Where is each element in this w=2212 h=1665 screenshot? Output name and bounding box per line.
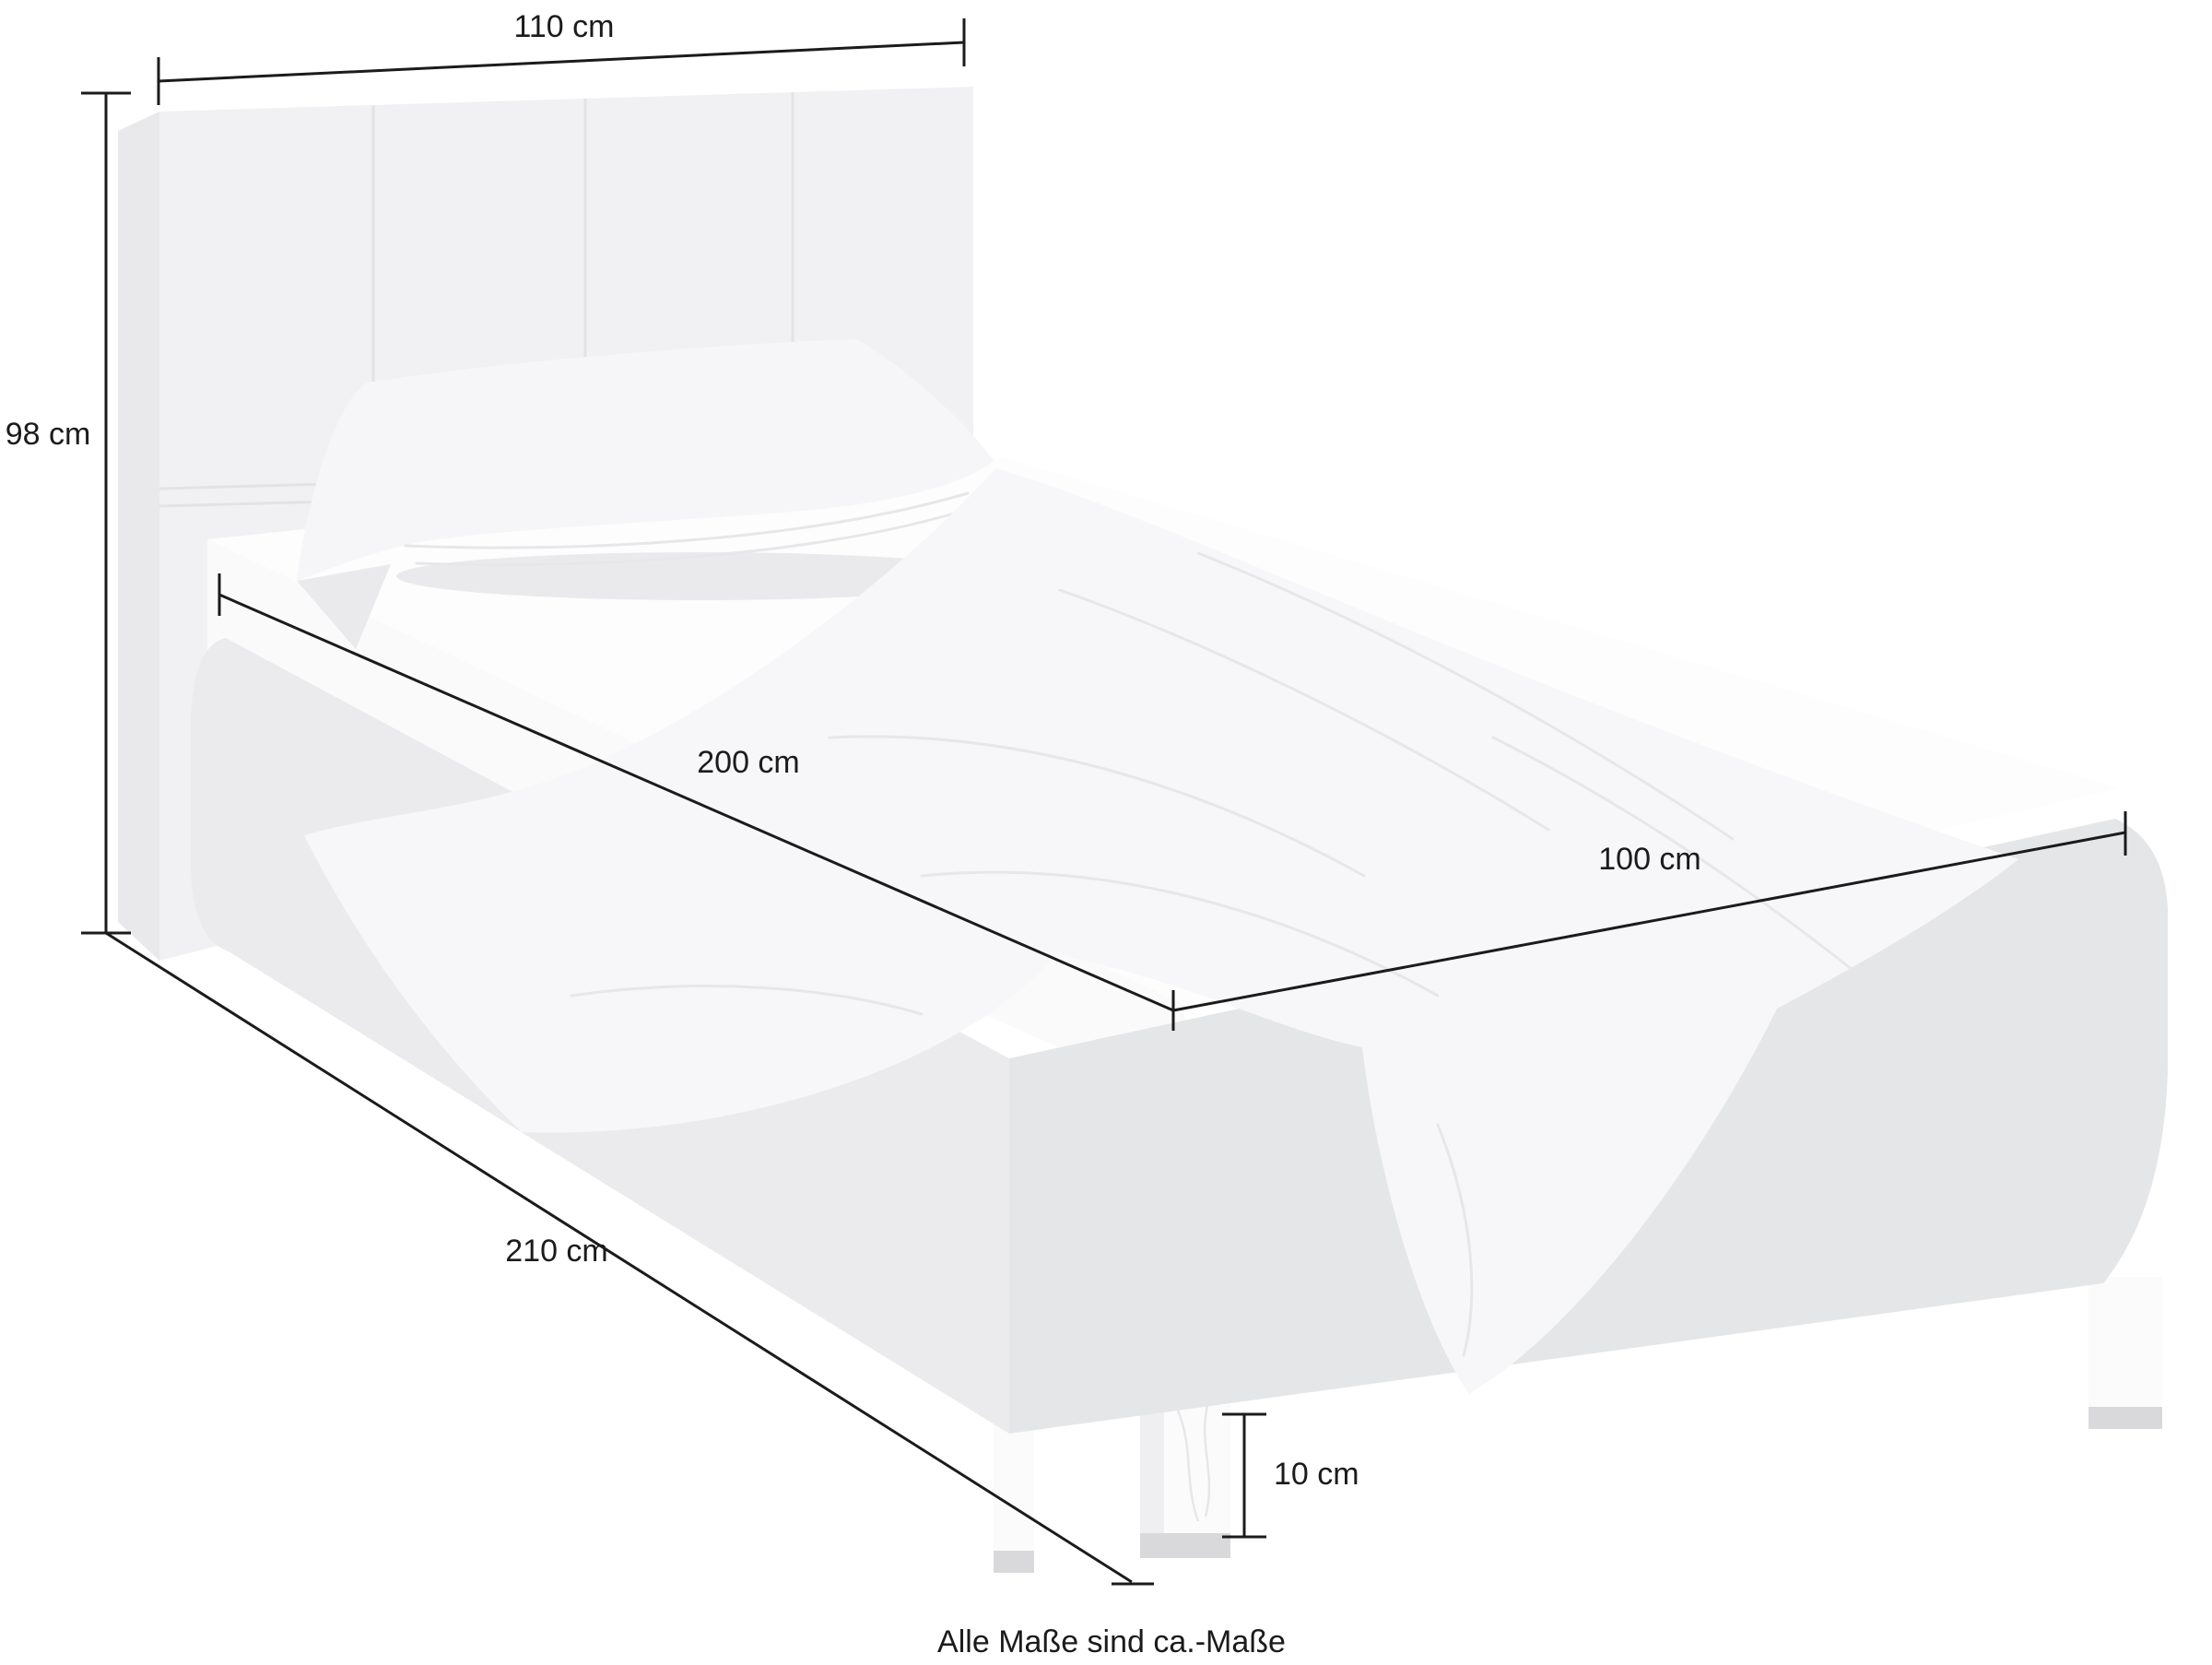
dimension-label-headboard-width: 110 cm — [514, 9, 615, 44]
dimension-line-headboard-width — [159, 42, 964, 81]
front-left-leg-foot — [994, 1551, 1034, 1573]
bed-illustration — [118, 87, 2168, 1573]
bed-leg-front-left — [994, 1420, 1034, 1573]
dimension-leg-height: 10 cm — [1222, 1414, 1359, 1537]
bed-illustration-canvas: 110 cm 98 cm 210 cm 200 cm 100 cm — [0, 0, 2212, 1665]
front-left-leg-body — [994, 1420, 1034, 1551]
front-right-leg-foot — [1140, 1533, 1230, 1558]
bed-leg-front-right — [1140, 1392, 1230, 1558]
bed-dimension-diagram: 110 cm 98 cm 210 cm 200 cm 100 cm — [0, 0, 2212, 1665]
dimension-label-mattress-width: 100 cm — [1598, 842, 1701, 877]
dimension-label-mattress-length: 200 cm — [697, 745, 800, 780]
back-right-leg-body — [2088, 1277, 2162, 1407]
headboard-side-face — [118, 112, 159, 961]
dimension-label-leg-height: 10 cm — [1274, 1457, 1359, 1492]
front-right-leg-body — [1164, 1392, 1230, 1535]
dimension-label-headboard-height: 98 cm — [6, 417, 91, 452]
dimension-headboard-height: 98 cm — [6, 93, 131, 933]
caption-approx-note: Alle Maße sind ca.-Maße — [937, 1624, 1286, 1659]
dimension-label-total-length: 210 cm — [505, 1234, 608, 1269]
back-right-leg-foot — [2088, 1407, 2162, 1429]
bed-leg-back-right — [2088, 1277, 2162, 1429]
